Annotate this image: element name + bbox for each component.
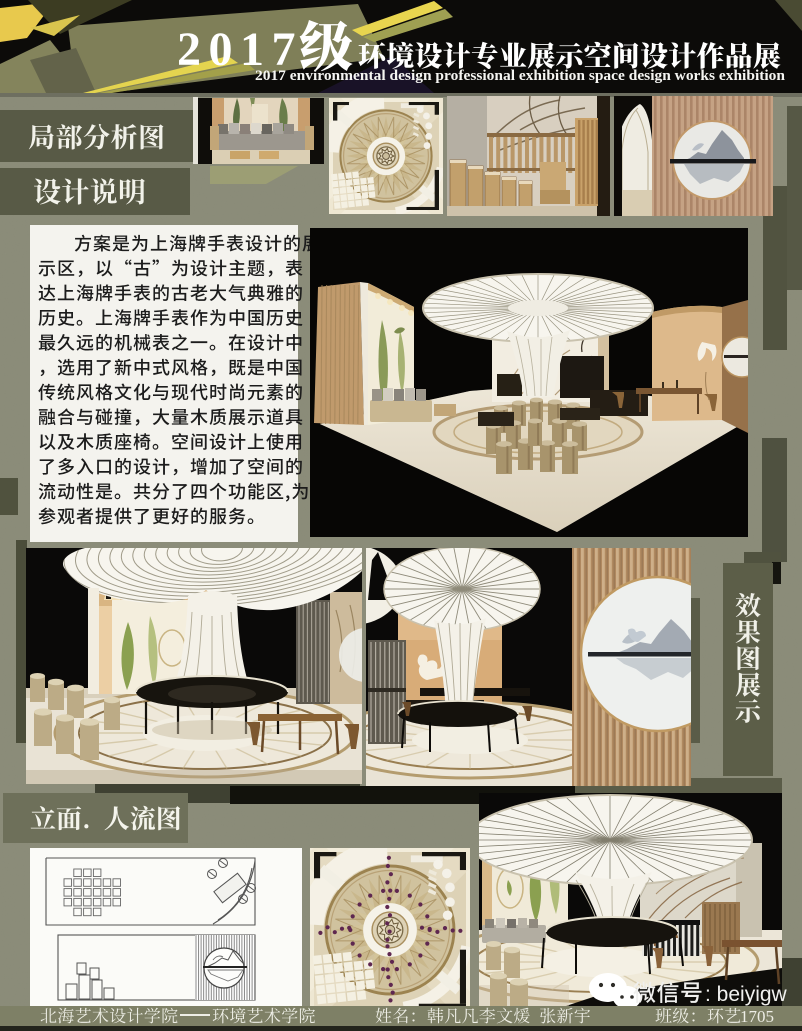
svg-text:2017 environmental design prof: 2017 environmental design professional e… [255, 68, 785, 84]
svg-text:1705: 1705 [740, 1007, 774, 1026]
svg-text:: beiyigw: : beiyigw [705, 983, 788, 1006]
